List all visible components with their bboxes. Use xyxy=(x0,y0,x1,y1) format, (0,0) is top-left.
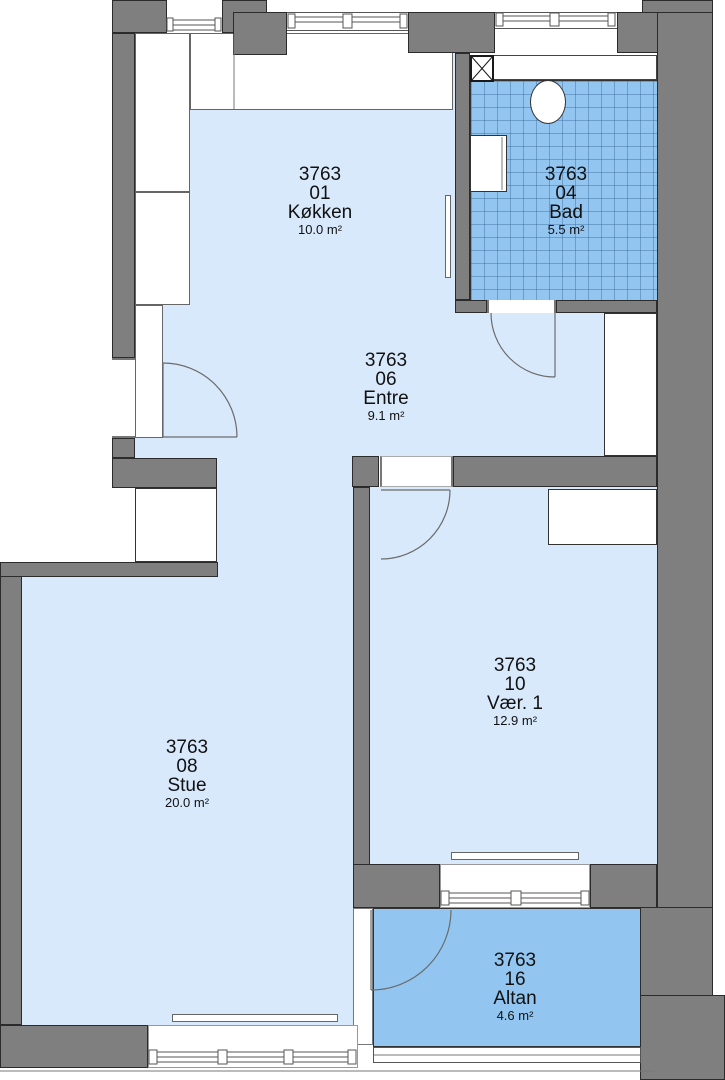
room-name: Køkken xyxy=(288,203,352,222)
room-name: Bad xyxy=(545,203,587,222)
vent-shaft-x-icon xyxy=(471,56,493,81)
room-id: 3763 xyxy=(545,165,587,184)
room-id: 3763 xyxy=(493,951,536,970)
entry-door-swing xyxy=(163,363,237,437)
detail-overlay xyxy=(0,0,725,1080)
altan-door-swing xyxy=(371,910,451,990)
room-label-bad: 3763 04 Bad 5.5 m² xyxy=(545,165,587,237)
room-id: 3763 xyxy=(487,656,543,675)
bad-door-swing xyxy=(491,313,555,377)
room-id: 3763 xyxy=(165,738,209,757)
floorplan-canvas: 3763 01 Køkken 10.0 m² 3763 04 Bad 5.5 m… xyxy=(0,0,725,1080)
room-name: Entre xyxy=(363,389,408,408)
room-id: 3763 xyxy=(288,165,352,184)
room-name: Altan xyxy=(493,989,536,1008)
room-area: 10.0 m² xyxy=(288,222,352,237)
room-label-vaer1: 3763 10 Vær. 1 12.9 m² xyxy=(487,656,543,728)
room-id: 3763 xyxy=(363,351,408,370)
room-area: 20.0 m² xyxy=(165,795,209,810)
room-number: 01 xyxy=(288,184,352,203)
room-number: 10 xyxy=(487,675,543,694)
room-number: 04 xyxy=(545,184,587,203)
room-name: Stue xyxy=(165,776,209,795)
room-label-kokken: 3763 01 Køkken 10.0 m² xyxy=(288,165,352,237)
room-number: 06 xyxy=(363,370,408,389)
vaer1-door-swing xyxy=(381,490,450,559)
room-label-altan: 3763 16 Altan 4.6 m² xyxy=(493,951,536,1023)
room-number: 08 xyxy=(165,757,209,776)
room-label-entre: 3763 06 Entre 9.1 m² xyxy=(363,351,408,423)
room-label-stue: 3763 08 Stue 20.0 m² xyxy=(165,738,209,810)
room-area: 5.5 m² xyxy=(545,222,587,237)
room-name: Vær. 1 xyxy=(487,694,543,713)
room-area: 9.1 m² xyxy=(363,408,408,423)
room-area: 4.6 m² xyxy=(493,1008,536,1023)
room-number: 16 xyxy=(493,970,536,989)
room-area: 12.9 m² xyxy=(487,713,543,728)
